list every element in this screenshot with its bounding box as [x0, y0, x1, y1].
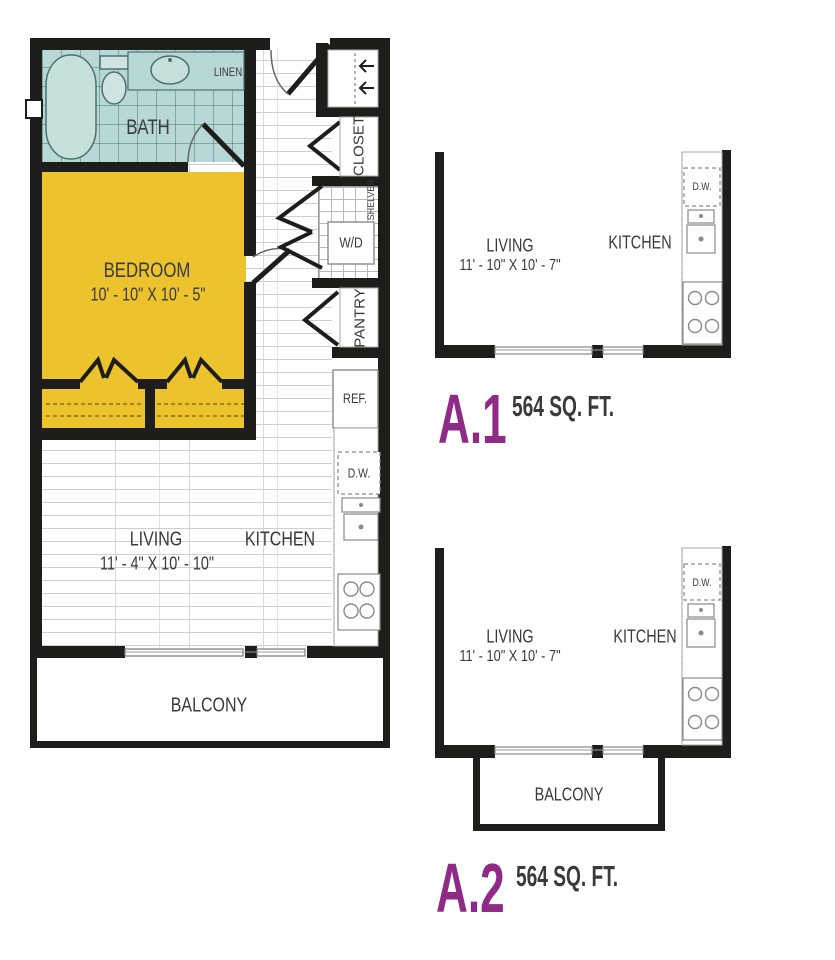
room-dims-living: 11' - 4" X 10' - 10": [100, 554, 214, 575]
a2-dims-living: 11' - 10" X 10' - 7": [459, 648, 560, 666]
a2-label-dishwasher: D.W.: [692, 577, 711, 589]
room-label-shelves: SHELVES: [366, 180, 376, 221]
a1-sliding-door: [495, 347, 643, 354]
room-label-kitchen: KITCHEN: [245, 529, 315, 552]
entry-coat-closet: [328, 50, 378, 107]
a1-label-living: LIVING: [486, 236, 533, 257]
a2-stove: [683, 678, 722, 740]
a1-dims-living: 11' - 10" X 10' - 7": [459, 257, 560, 275]
floorplan-sheet: BATH LINEN BEDROOM 10' - 10" X 10' - 5" …: [0, 0, 835, 960]
a1-label-kitchen: KITCHEN: [608, 233, 671, 254]
a2-label-kitchen: KITCHEN: [613, 627, 676, 648]
room-dims-bedroom: 10' - 10" X 10' - 5": [91, 285, 206, 306]
unit-a2-area: 564 SQ. FT.: [516, 863, 618, 892]
room-label-balcony: BALCONY: [171, 695, 247, 718]
a2-sliding-door: [495, 747, 643, 754]
unit-a1-name: A.1: [438, 384, 507, 454]
room-label-bedroom: BEDROOM: [104, 259, 191, 283]
room-label-refrigerator: REF.: [343, 390, 367, 406]
a1-label-dishwasher: D.W.: [692, 181, 711, 193]
a2-kitchen-sink: [687, 604, 715, 647]
unit-a1-linework: [430, 140, 740, 370]
room-label-washer-dryer: W/D: [339, 235, 362, 252]
stove: [338, 574, 380, 630]
room-label-living: LIVING: [130, 529, 182, 552]
room-label-pantry: PANTRY: [352, 288, 369, 347]
room-label-closet: CLOSET: [351, 116, 368, 176]
room-label-linen: LINEN: [214, 65, 242, 79]
unit-a1-area: 564 SQ. FT.: [512, 393, 614, 422]
bifold-doors: [80, 122, 340, 382]
room-label-dishwasher: D.W.: [348, 466, 371, 481]
room-label-bath: BATH: [126, 116, 170, 140]
a2-label-balcony: BALCONY: [535, 785, 604, 806]
a1-stove: [683, 282, 722, 344]
a2-label-living: LIVING: [486, 627, 533, 648]
main-kitchen-counter: [334, 428, 380, 646]
main-sliding-door: [125, 649, 305, 656]
a1-kitchen-sink: [687, 210, 715, 253]
unit-a2-name: A.2: [436, 853, 505, 923]
toilet: [100, 56, 128, 104]
kitchen-sink: [342, 498, 380, 540]
